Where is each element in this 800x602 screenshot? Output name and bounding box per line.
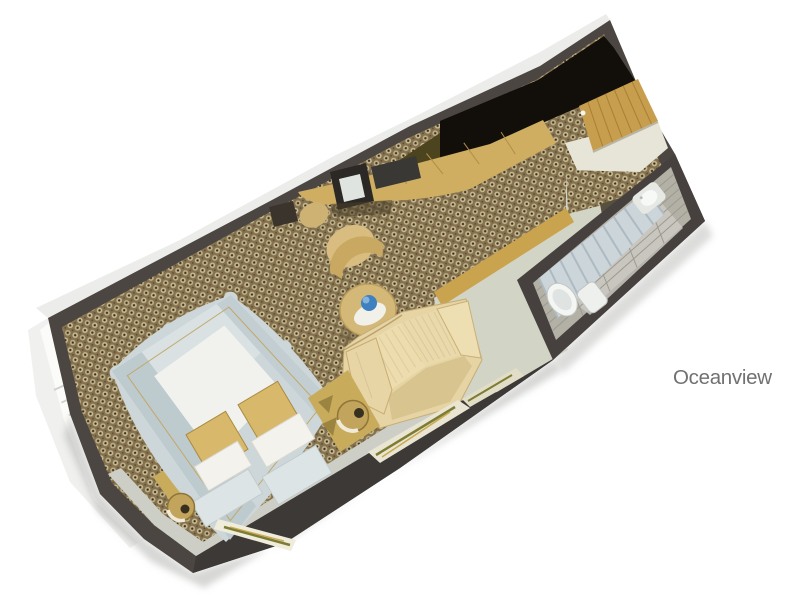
- svg-text:Oceanview: Oceanview: [673, 366, 772, 389]
